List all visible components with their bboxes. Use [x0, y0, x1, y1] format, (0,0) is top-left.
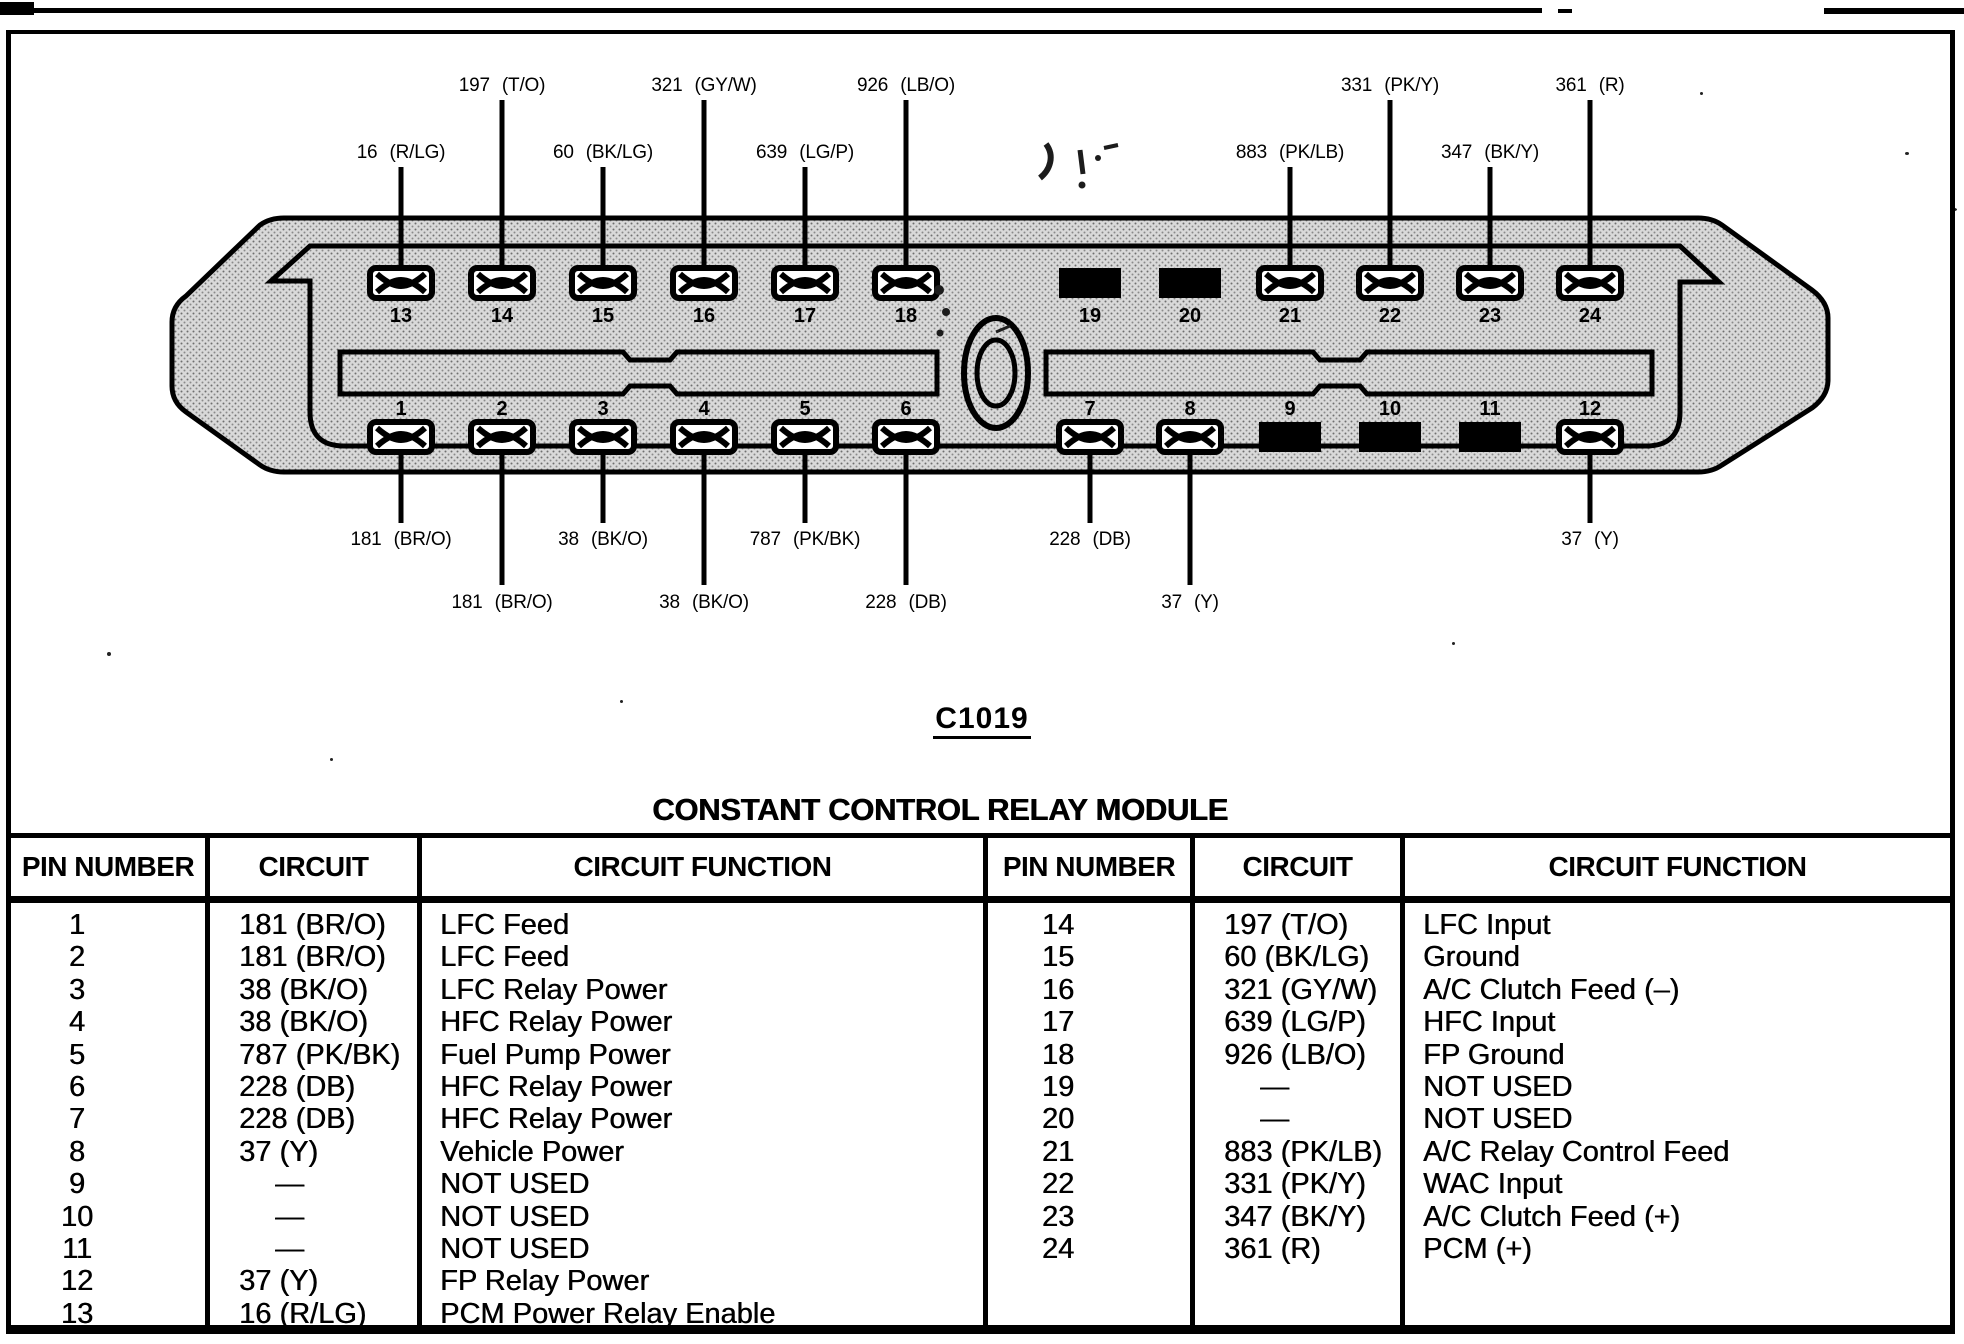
cell-function: HFC Input	[1400, 1006, 1945, 1038]
pin-number-10: 10	[1379, 398, 1401, 420]
cell-circuit: 181 (BR/O)	[205, 909, 417, 941]
pin-number-22: 22	[1379, 305, 1401, 327]
cell-function: FP Ground	[1400, 1039, 1945, 1071]
cell-function: A/C Relay Control Feed	[1400, 1136, 1945, 1168]
cell-pin: 10	[11, 1201, 205, 1233]
pin-22	[1359, 268, 1421, 298]
cell-function: HFC Relay Power	[417, 1103, 983, 1135]
cell-function: PCM Power Relay Enable	[417, 1298, 983, 1330]
pin-19-blocked	[1059, 268, 1121, 298]
cell-circuit: 181 (BR/O)	[205, 941, 417, 973]
cell-pin: 19	[988, 1071, 1190, 1103]
cell-pin: 7	[11, 1103, 205, 1135]
pin-16	[673, 268, 735, 298]
wire-label-pin15: 60 (BK/LG)	[553, 142, 653, 163]
pin-number-19: 19	[1079, 305, 1101, 327]
cell-circuit: 787 (PK/BK)	[205, 1039, 417, 1071]
cell-circuit: 60 (BK/LG)	[1190, 941, 1400, 973]
cell-function: WAC Input	[1400, 1168, 1945, 1200]
wire-label-pin14: 197 (T/O)	[459, 75, 546, 96]
wire-label-pin8: 37 (Y)	[1161, 592, 1219, 613]
cell-circuit: 38 (BK/O)	[205, 1006, 417, 1038]
cell-function: A/C Clutch Feed (+)	[1400, 1201, 1945, 1233]
wire-label-pin16: 321 (GY/W)	[651, 75, 756, 96]
cell-pin: 23	[988, 1201, 1190, 1233]
pin-number-17: 17	[794, 305, 816, 327]
cell-function: NOT USED	[417, 1201, 983, 1233]
cell-circuit: 197 (T/O)	[1190, 909, 1400, 941]
cell-circuit: 37 (Y)	[205, 1136, 417, 1168]
pin-number-8: 8	[1184, 398, 1195, 420]
cell-pin: 24	[988, 1233, 1190, 1265]
cell-function: NOT USED	[1400, 1071, 1945, 1103]
cell-circuit: 639 (LG/P)	[1190, 1006, 1400, 1038]
cell-circuit: 331 (PK/Y)	[1190, 1168, 1400, 1200]
wire-label-pin1: 181 (BR/O)	[350, 529, 451, 550]
cell-circuit: 38 (BK/O)	[205, 974, 417, 1006]
cell-pin: 4	[11, 1006, 205, 1038]
pin-number-5: 5	[799, 398, 810, 420]
cell-function: Ground	[1400, 941, 1945, 973]
cell-pin: 12	[11, 1265, 205, 1297]
pin-7	[1059, 422, 1121, 452]
pin-3	[572, 422, 634, 452]
cell-pin: 16	[988, 974, 1190, 1006]
pin-number-2: 2	[496, 398, 507, 420]
cell-circuit: 926 (LB/O)	[1190, 1039, 1400, 1071]
pin-9-blocked	[1259, 422, 1321, 452]
cell-pin: 18	[988, 1039, 1190, 1071]
header-pin-number-left: PIN NUMBER	[11, 838, 205, 896]
wire-label-pin7: 228 (DB)	[1049, 529, 1130, 550]
pin-number-4: 4	[698, 398, 710, 420]
wire-label-pin5: 787 (PK/BK)	[750, 529, 860, 550]
pin-1	[370, 422, 432, 452]
cell-pin: 8	[11, 1136, 205, 1168]
cell-pin: 3	[11, 974, 205, 1006]
cell-circuit: 228 (DB)	[205, 1071, 417, 1103]
cell-circuit: —	[205, 1233, 417, 1265]
pin-number-9: 9	[1284, 398, 1295, 420]
pin-11-blocked	[1459, 422, 1521, 452]
cell-function: LFC Input	[1400, 909, 1945, 941]
cell-pin: 22	[988, 1168, 1190, 1200]
cell-function: NOT USED	[417, 1168, 983, 1200]
pin-4	[673, 422, 735, 452]
cell-function: Fuel Pump Power	[417, 1039, 983, 1071]
cell-pin: 13	[11, 1298, 205, 1330]
cell-function: LFC Relay Power	[417, 974, 983, 1006]
pin-number-24: 24	[1579, 305, 1602, 327]
wire-label-pin13: 16 (R/LG)	[357, 142, 446, 163]
cell-pin: 17	[988, 1006, 1190, 1038]
pin-17	[774, 268, 836, 298]
pin-15	[572, 268, 634, 298]
pin-18	[875, 268, 937, 298]
pin-number-13: 13	[390, 305, 412, 327]
header-circuit-function-left: CIRCUIT FUNCTION	[422, 838, 983, 896]
cell-pin: 2	[11, 941, 205, 973]
pin-2	[471, 422, 533, 452]
pin-14	[471, 268, 533, 298]
wire-label-pin17: 639 (LG/P)	[756, 142, 854, 163]
cell-function: A/C Clutch Feed (–)	[1400, 974, 1945, 1006]
cell-circuit: —	[1190, 1071, 1400, 1103]
pin-number-12: 12	[1579, 398, 1601, 420]
connector-id-title: C1019	[0, 702, 1964, 736]
pin-number-7: 7	[1084, 398, 1095, 420]
pin-number-14: 14	[491, 305, 514, 327]
cell-pin: 14	[988, 909, 1190, 941]
pinout-table-left: 1 181 (BR/O) LFC Feed 2 181 (BR/O) LFC F…	[11, 903, 983, 1330]
header-circuit-left: CIRCUIT	[210, 838, 417, 896]
pin-21	[1259, 268, 1321, 298]
cell-circuit: 883 (PK/LB)	[1190, 1136, 1400, 1168]
pin-8	[1159, 422, 1221, 452]
pin-number-1: 1	[395, 398, 406, 420]
cell-pin: 1	[11, 909, 205, 941]
pin-number-16: 16	[693, 305, 715, 327]
cell-pin: 11	[11, 1233, 205, 1265]
cell-function: HFC Relay Power	[417, 1006, 983, 1038]
cell-circuit: —	[205, 1201, 417, 1233]
cell-circuit: 347 (BK/Y)	[1190, 1201, 1400, 1233]
cell-circuit: 37 (Y)	[205, 1265, 417, 1297]
cell-circuit: 16 (R/LG)	[205, 1298, 417, 1330]
wire-label-pin3: 38 (BK/O)	[558, 529, 648, 550]
wire-label-pin12: 37 (Y)	[1561, 529, 1619, 550]
cell-pin: 6	[11, 1071, 205, 1103]
wire-label-pin23: 347 (BK/Y)	[1441, 142, 1539, 163]
table-header-border	[6, 896, 1955, 903]
wire-label-pin18: 926 (LB/O)	[857, 75, 955, 96]
pinout-table-right: 14 197 (T/O) LFC Input 15 60 (BK/LG) Gro…	[988, 903, 1950, 1265]
cell-function: PCM (+)	[1400, 1233, 1945, 1265]
cell-pin: 15	[988, 941, 1190, 973]
cell-circuit: 361 (R)	[1190, 1233, 1400, 1265]
pin-number-3: 3	[597, 398, 608, 420]
cell-pin: 5	[11, 1039, 205, 1071]
cell-function: FP Relay Power	[417, 1265, 983, 1297]
pin-20-blocked	[1159, 268, 1221, 298]
pin-number-6: 6	[900, 398, 911, 420]
cell-function: NOT USED	[417, 1233, 983, 1265]
cell-function: Vehicle Power	[417, 1136, 983, 1168]
wire-label-pin24: 361 (R)	[1556, 75, 1625, 96]
wire-label-pin21: 883 (PK/LB)	[1236, 142, 1344, 163]
connector-name-title: CONSTANT CONTROL RELAY MODULE	[0, 792, 1880, 828]
pin-23	[1459, 268, 1521, 298]
pin-6	[875, 422, 937, 452]
pin-number-18: 18	[895, 305, 917, 327]
cell-circuit: 321 (GY/W)	[1190, 974, 1400, 1006]
header-circuit-function-right: CIRCUIT FUNCTION	[1405, 838, 1950, 896]
scanned-wiring-diagram-page: 13 14 15 16 17 18 19 20 21 22 23 24 1 2 …	[0, 0, 1964, 1344]
pin-number-21: 21	[1279, 305, 1301, 327]
cell-pin: 20	[988, 1103, 1190, 1135]
cell-function: HFC Relay Power	[417, 1071, 983, 1103]
header-circuit-right: CIRCUIT	[1195, 838, 1400, 896]
pin-13	[370, 268, 432, 298]
cell-pin: 9	[11, 1168, 205, 1200]
cell-circuit: 228 (DB)	[205, 1103, 417, 1135]
cell-function: LFC Feed	[417, 909, 983, 941]
cell-circuit: —	[205, 1168, 417, 1200]
header-pin-number-right: PIN NUMBER	[988, 838, 1190, 896]
cell-circuit: —	[1190, 1103, 1400, 1135]
pin-number-20: 20	[1179, 305, 1201, 327]
pin-number-11: 11	[1479, 398, 1500, 420]
wire-label-pin22: 331 (PK/Y)	[1341, 75, 1439, 96]
pin-24	[1559, 268, 1621, 298]
cell-function: LFC Feed	[417, 941, 983, 973]
wire-label-pin6: 228 (DB)	[865, 592, 946, 613]
wire-label-pin4: 38 (BK/O)	[659, 592, 749, 613]
pin-10-blocked	[1359, 422, 1421, 452]
pin-number-23: 23	[1479, 305, 1501, 327]
pin-12	[1559, 422, 1621, 452]
cell-pin: 21	[988, 1136, 1190, 1168]
pin-number-15: 15	[592, 305, 614, 327]
wire-label-pin2: 181 (BR/O)	[451, 592, 552, 613]
cell-function: NOT USED	[1400, 1103, 1945, 1135]
pin-5	[774, 422, 836, 452]
